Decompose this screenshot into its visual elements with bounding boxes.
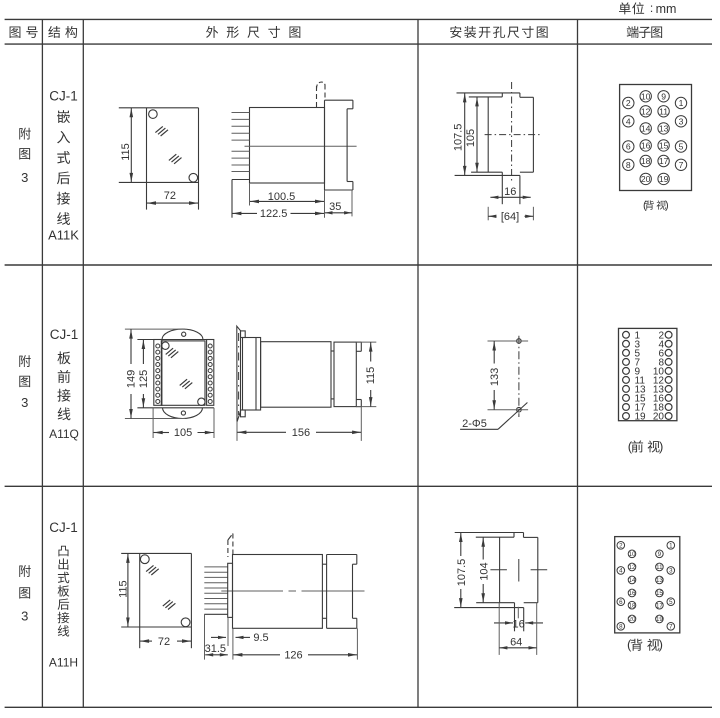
svg-text:14: 14 [641, 123, 651, 133]
svg-text:): ) [659, 637, 663, 652]
svg-text:11: 11 [659, 106, 668, 116]
svg-text:13: 13 [659, 123, 669, 133]
svg-text:19: 19 [635, 412, 647, 423]
svg-text:72: 72 [158, 636, 170, 648]
svg-text:9: 9 [661, 91, 666, 101]
svg-text:20: 20 [629, 616, 636, 623]
svg-text::: : [650, 1, 653, 15]
svg-text:115: 115 [117, 580, 129, 598]
svg-text:9: 9 [658, 551, 662, 558]
svg-text:107.5: 107.5 [452, 124, 464, 152]
svg-text:3: 3 [669, 568, 673, 575]
svg-text:104: 104 [478, 562, 490, 580]
svg-text:16: 16 [629, 590, 636, 597]
svg-text:mm: mm [656, 2, 677, 16]
svg-text:16: 16 [504, 186, 516, 198]
svg-text:4: 4 [619, 568, 623, 575]
svg-text:20: 20 [641, 174, 651, 184]
svg-text:16: 16 [641, 140, 651, 150]
svg-text:15: 15 [656, 590, 663, 597]
svg-text:15: 15 [659, 140, 669, 150]
svg-text:1: 1 [669, 543, 673, 550]
svg-text:5: 5 [669, 599, 673, 606]
svg-text:8: 8 [626, 160, 631, 170]
svg-text:115: 115 [365, 367, 377, 385]
svg-text:9.5: 9.5 [253, 632, 268, 644]
svg-text:11: 11 [656, 564, 663, 571]
svg-text:3: 3 [21, 170, 28, 185]
svg-text:105: 105 [174, 427, 192, 439]
svg-text:1: 1 [679, 98, 684, 108]
svg-text:64: 64 [510, 636, 522, 648]
svg-text:20: 20 [653, 412, 665, 423]
svg-text:133: 133 [489, 368, 501, 386]
svg-text:2: 2 [626, 98, 631, 108]
svg-text:[64]: [64] [501, 211, 519, 223]
svg-text:7: 7 [669, 624, 673, 631]
svg-text:12: 12 [629, 564, 636, 571]
svg-text:10: 10 [641, 91, 651, 101]
svg-text:18: 18 [629, 602, 636, 609]
svg-text:14: 14 [629, 577, 636, 584]
svg-text:18: 18 [641, 156, 651, 166]
svg-text:CJ-1: CJ-1 [49, 89, 78, 104]
svg-text:10: 10 [629, 551, 636, 558]
svg-text:6: 6 [626, 142, 631, 152]
svg-text:16: 16 [512, 618, 524, 630]
svg-text:7: 7 [679, 160, 684, 170]
svg-text:3: 3 [21, 608, 28, 623]
svg-text:100.5: 100.5 [268, 191, 296, 203]
svg-text:13: 13 [656, 577, 663, 584]
svg-text:17: 17 [659, 156, 669, 166]
svg-text:CJ-1: CJ-1 [49, 520, 78, 535]
svg-text:35: 35 [329, 201, 341, 213]
svg-text:(: ( [628, 439, 633, 454]
svg-text:105: 105 [465, 129, 477, 147]
svg-text:126: 126 [284, 650, 302, 662]
svg-text:(: ( [627, 637, 632, 652]
svg-text:A11H: A11H [49, 656, 78, 670]
svg-text:): ) [665, 200, 669, 212]
svg-text:): ) [659, 439, 663, 454]
svg-text:156: 156 [292, 427, 310, 439]
svg-text:3: 3 [679, 116, 684, 126]
svg-text:A11Q: A11Q [49, 427, 79, 441]
svg-text:31.5: 31.5 [205, 643, 226, 655]
svg-text:5: 5 [679, 142, 684, 152]
svg-text:2-Φ5: 2-Φ5 [462, 418, 487, 430]
svg-text:125: 125 [138, 370, 150, 388]
svg-text:A11K: A11K [48, 228, 79, 243]
svg-text:149: 149 [126, 370, 138, 388]
svg-text:115: 115 [120, 143, 132, 161]
svg-text:72: 72 [164, 190, 176, 202]
svg-text:17: 17 [656, 602, 663, 609]
svg-text:2: 2 [619, 543, 623, 550]
svg-text:4: 4 [626, 116, 631, 126]
svg-text:CJ-1: CJ-1 [50, 327, 79, 342]
svg-text:12: 12 [641, 106, 651, 116]
svg-text:3: 3 [21, 395, 28, 410]
svg-text:107.5: 107.5 [456, 559, 468, 587]
svg-text:122.5: 122.5 [260, 208, 288, 220]
svg-text:8: 8 [619, 624, 623, 631]
svg-text:6: 6 [619, 599, 623, 606]
svg-text:19: 19 [656, 616, 663, 623]
svg-text:19: 19 [659, 174, 669, 184]
